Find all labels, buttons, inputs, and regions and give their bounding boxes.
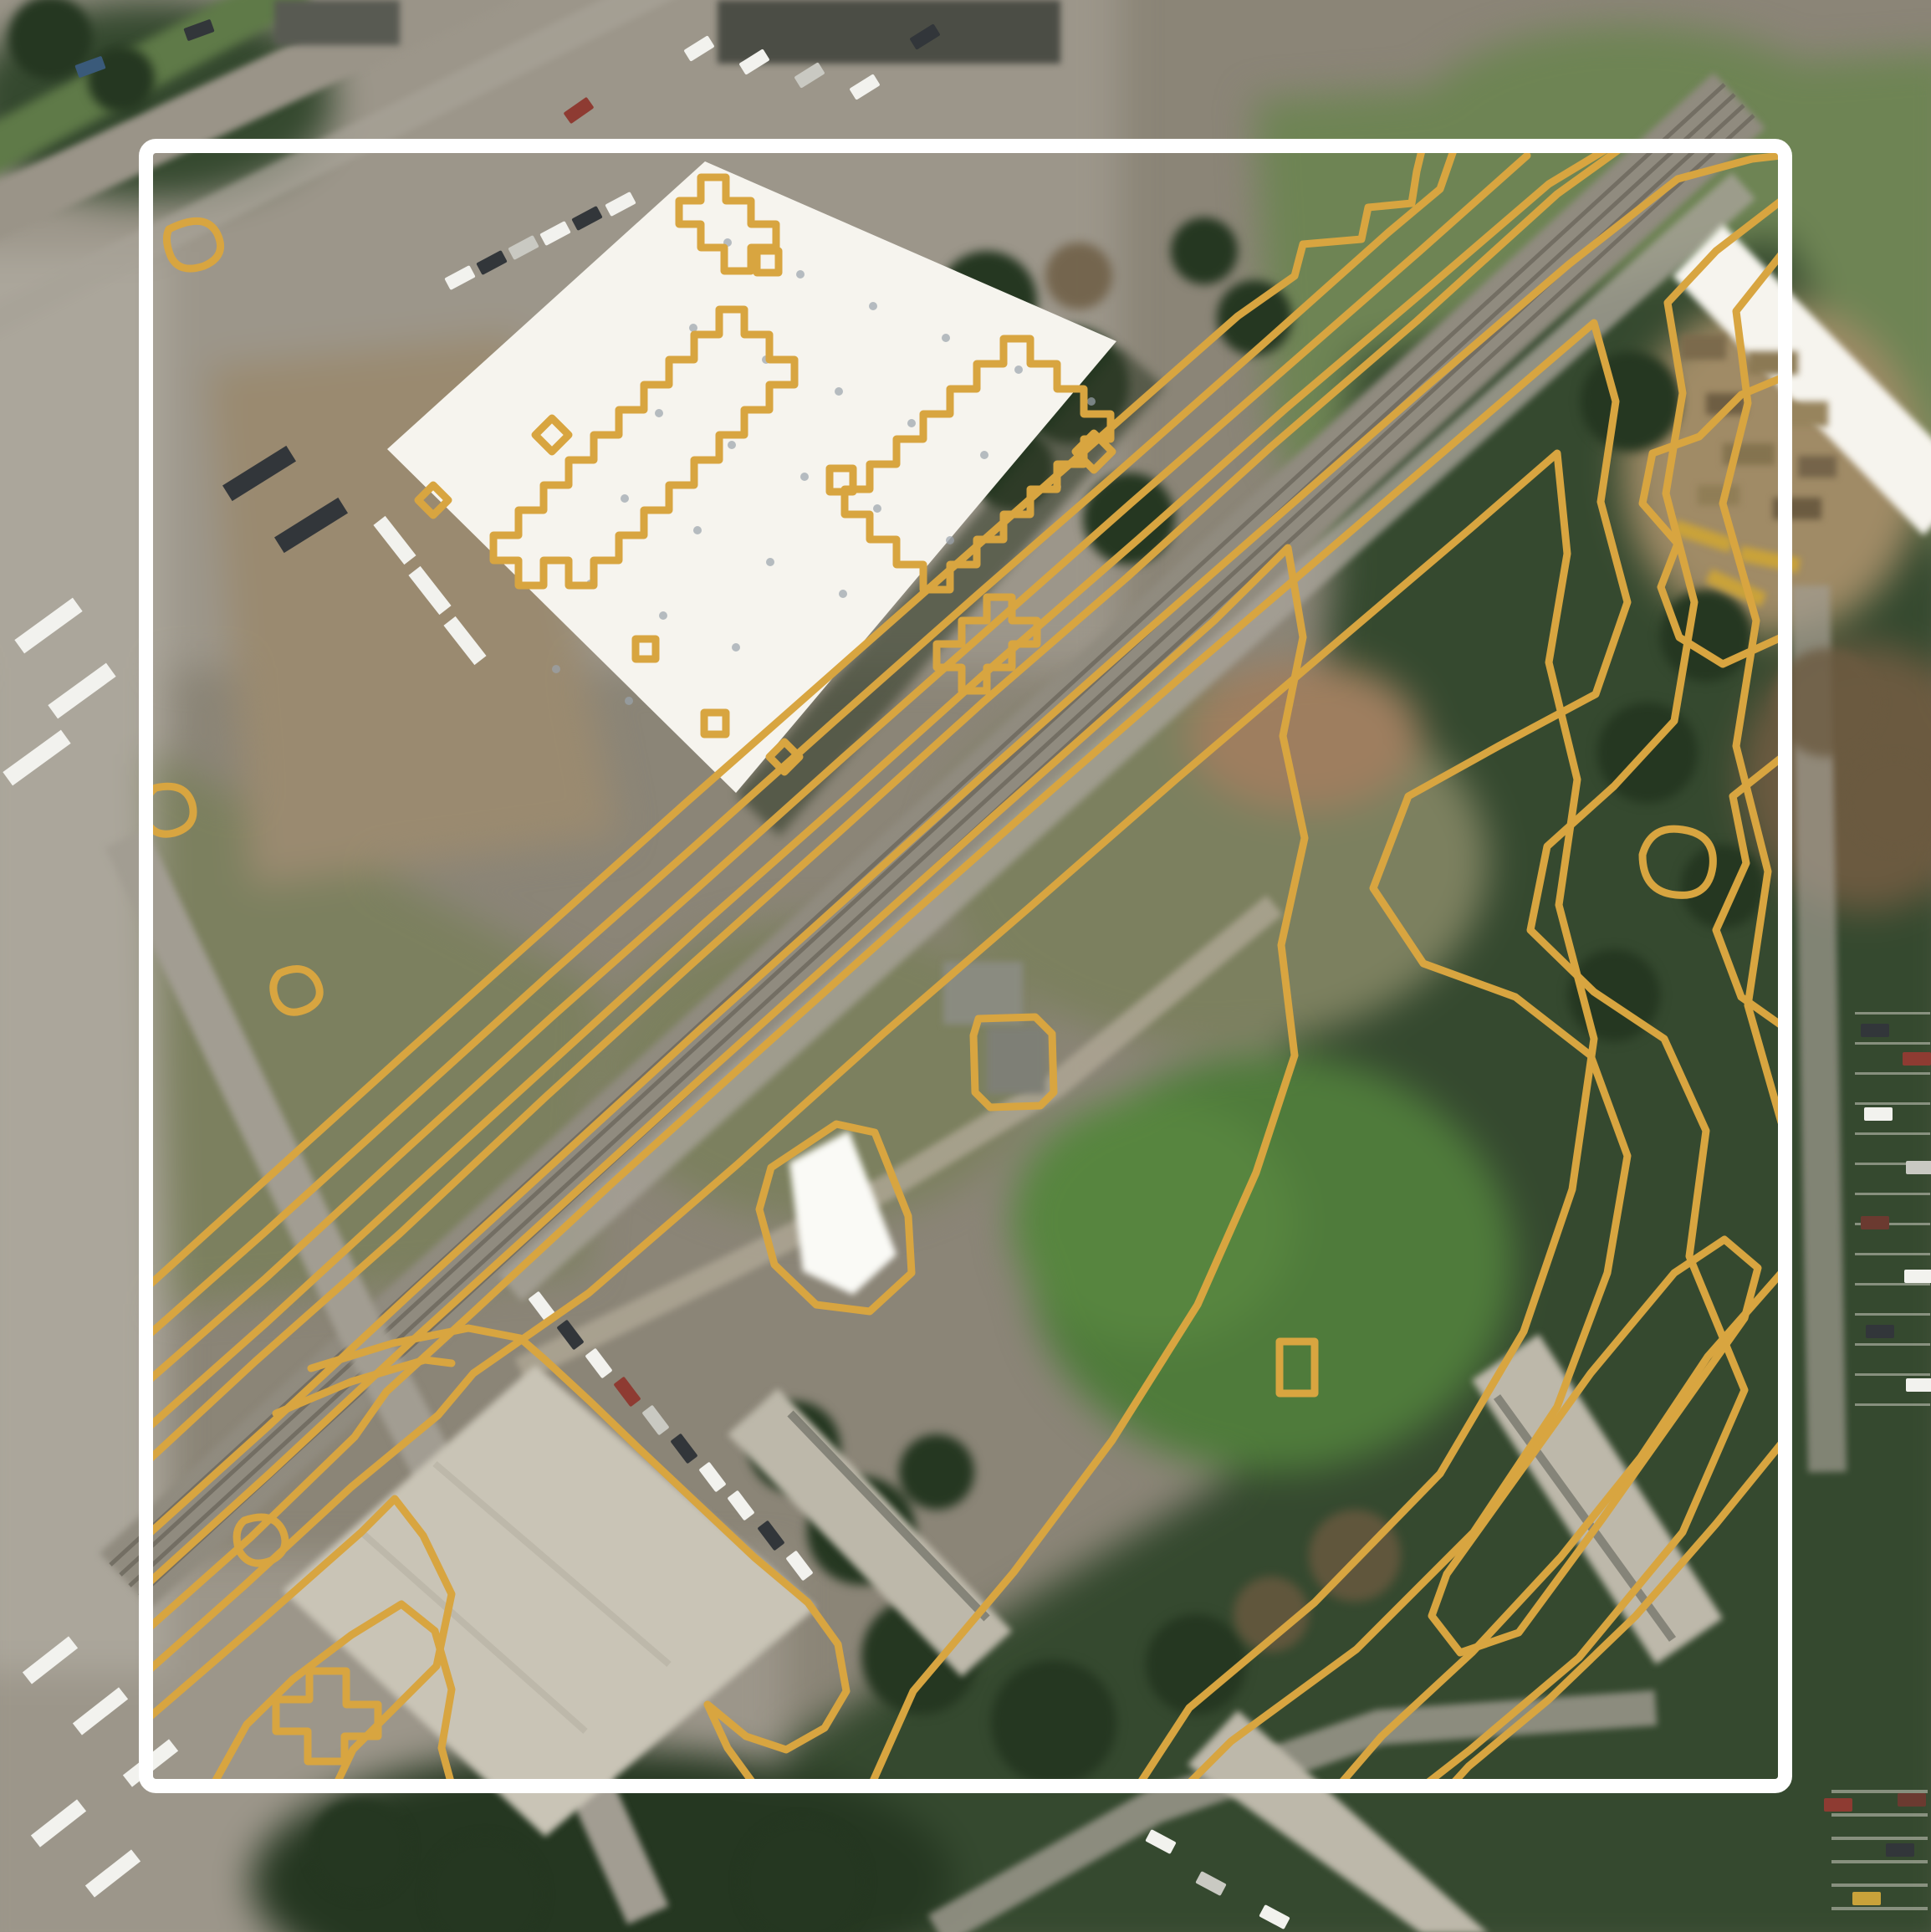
satellite-map: [0, 0, 1931, 1932]
gray-shed: [987, 1027, 1045, 1094]
map-canvas[interactable]: [0, 0, 1931, 1932]
